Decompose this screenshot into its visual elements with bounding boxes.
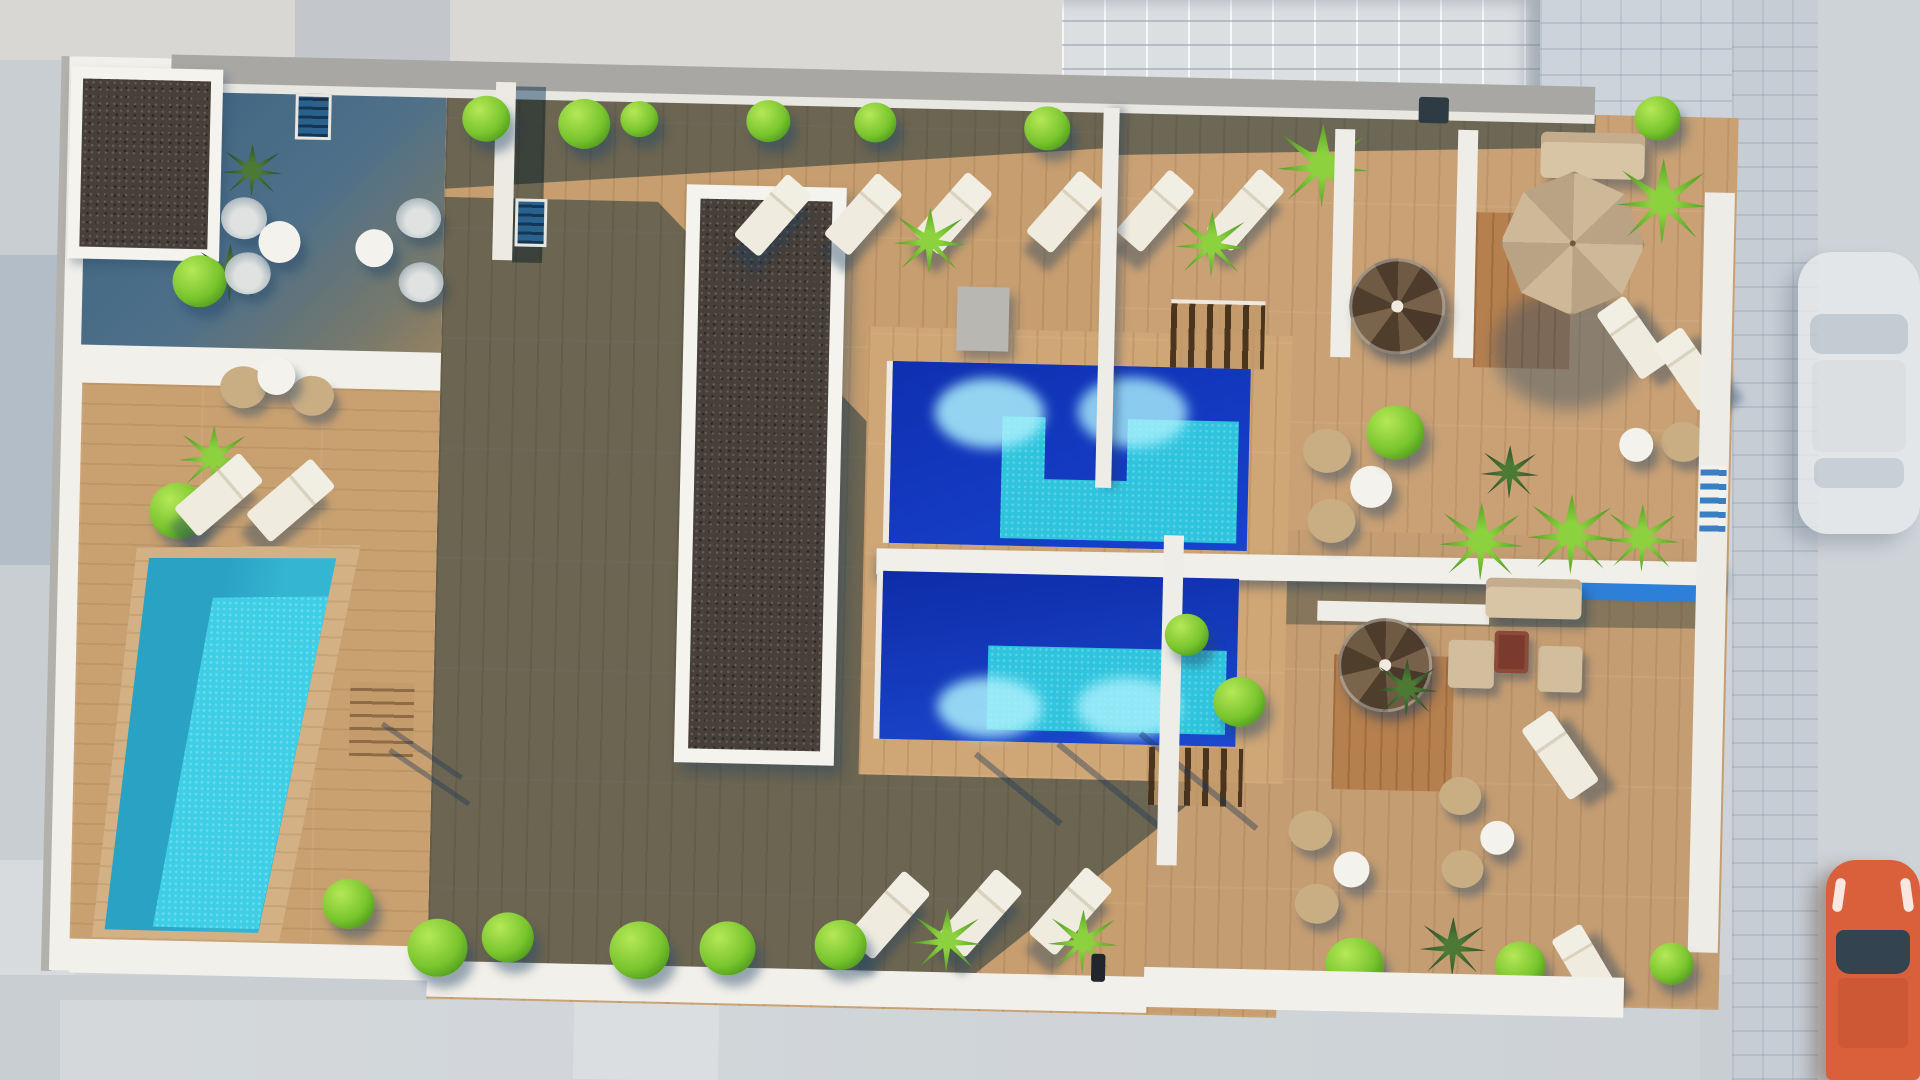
pool-utility-box: [956, 286, 1009, 351]
pool-light-glow: [934, 376, 1046, 448]
outdoor-sofa: [1540, 132, 1645, 180]
car-white-windshield: [1810, 314, 1908, 354]
gravel-bed-large: [688, 199, 832, 752]
main-pool-upper: [889, 361, 1251, 551]
main-pool-lower-shallow: [879, 571, 1239, 747]
car-orange-windshield: [1836, 930, 1910, 974]
scene-rooftop-render: [0, 0, 1920, 1080]
pool-ladder-blue: [1699, 465, 1726, 532]
main-pool-upper-shallow: [889, 361, 1251, 551]
outdoor-sofa: [1485, 577, 1582, 619]
lounge-chair-square: [1448, 640, 1495, 689]
main-pool-lower: [879, 571, 1239, 747]
pool-stairs-upper: [1170, 303, 1265, 369]
rooftop-estate: [37, 40, 1799, 1080]
car-orange: [1826, 860, 1920, 1080]
car-white-rear-window: [1814, 458, 1904, 488]
rooftop-vent-box: [1418, 97, 1449, 124]
car-orange-roof: [1838, 978, 1908, 1048]
perimeter-wall-bottom-left: [69, 938, 430, 980]
lounge-chair-square: [1538, 646, 1583, 693]
gravel-bed-small: [79, 79, 211, 250]
car-white-roof: [1812, 360, 1906, 452]
skylight-blue: [295, 93, 332, 140]
car-white: [1798, 252, 1920, 534]
deck-bollard: [1091, 954, 1106, 982]
drain-hatch-blue: [514, 198, 547, 247]
stairs-left-terrace: [349, 682, 415, 757]
fire-table: [1494, 631, 1529, 674]
